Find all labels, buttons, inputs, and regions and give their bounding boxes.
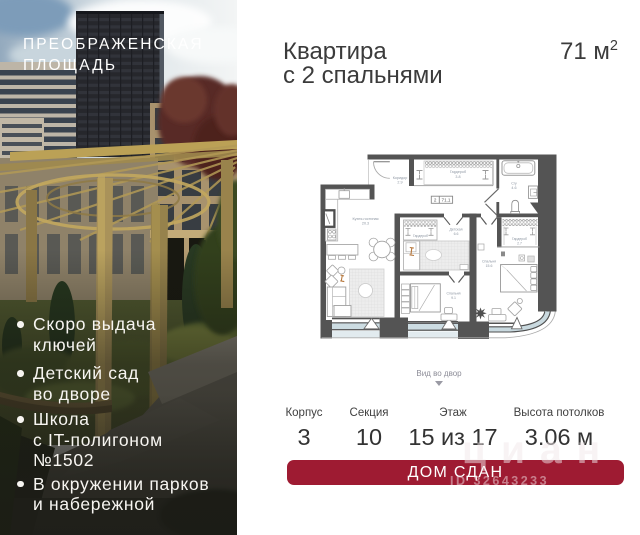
svg-text:9.1: 9.1	[451, 296, 456, 300]
svg-text:2: 2	[434, 198, 437, 203]
svg-text:С/у: С/у	[511, 181, 517, 185]
svg-text:71.1: 71.1	[442, 198, 451, 203]
svg-text:6.6: 6.6	[454, 232, 459, 236]
svg-text:4.6: 4.6	[511, 186, 516, 190]
svg-text:15.6: 15.6	[486, 264, 493, 268]
svg-text:Коридор: Коридор	[393, 176, 408, 180]
svg-text:2.9: 2.9	[397, 181, 402, 185]
svg-text:Спальня: Спальня	[446, 292, 460, 296]
svg-text:Детская: Детская	[450, 228, 463, 232]
svg-text:20.3: 20.3	[362, 222, 369, 226]
svg-text:Кухня-гостиная: Кухня-гостиная	[352, 217, 378, 221]
svg-text:Спальня: Спальня	[482, 260, 496, 264]
svg-text:Гардероб: Гардероб	[512, 237, 527, 241]
svg-text:Гардероб: Гардероб	[413, 234, 428, 238]
svg-text:Гардероб: Гардероб	[450, 170, 466, 174]
svg-text:2.7: 2.7	[517, 242, 522, 246]
svg-text:3.8: 3.8	[455, 175, 460, 179]
